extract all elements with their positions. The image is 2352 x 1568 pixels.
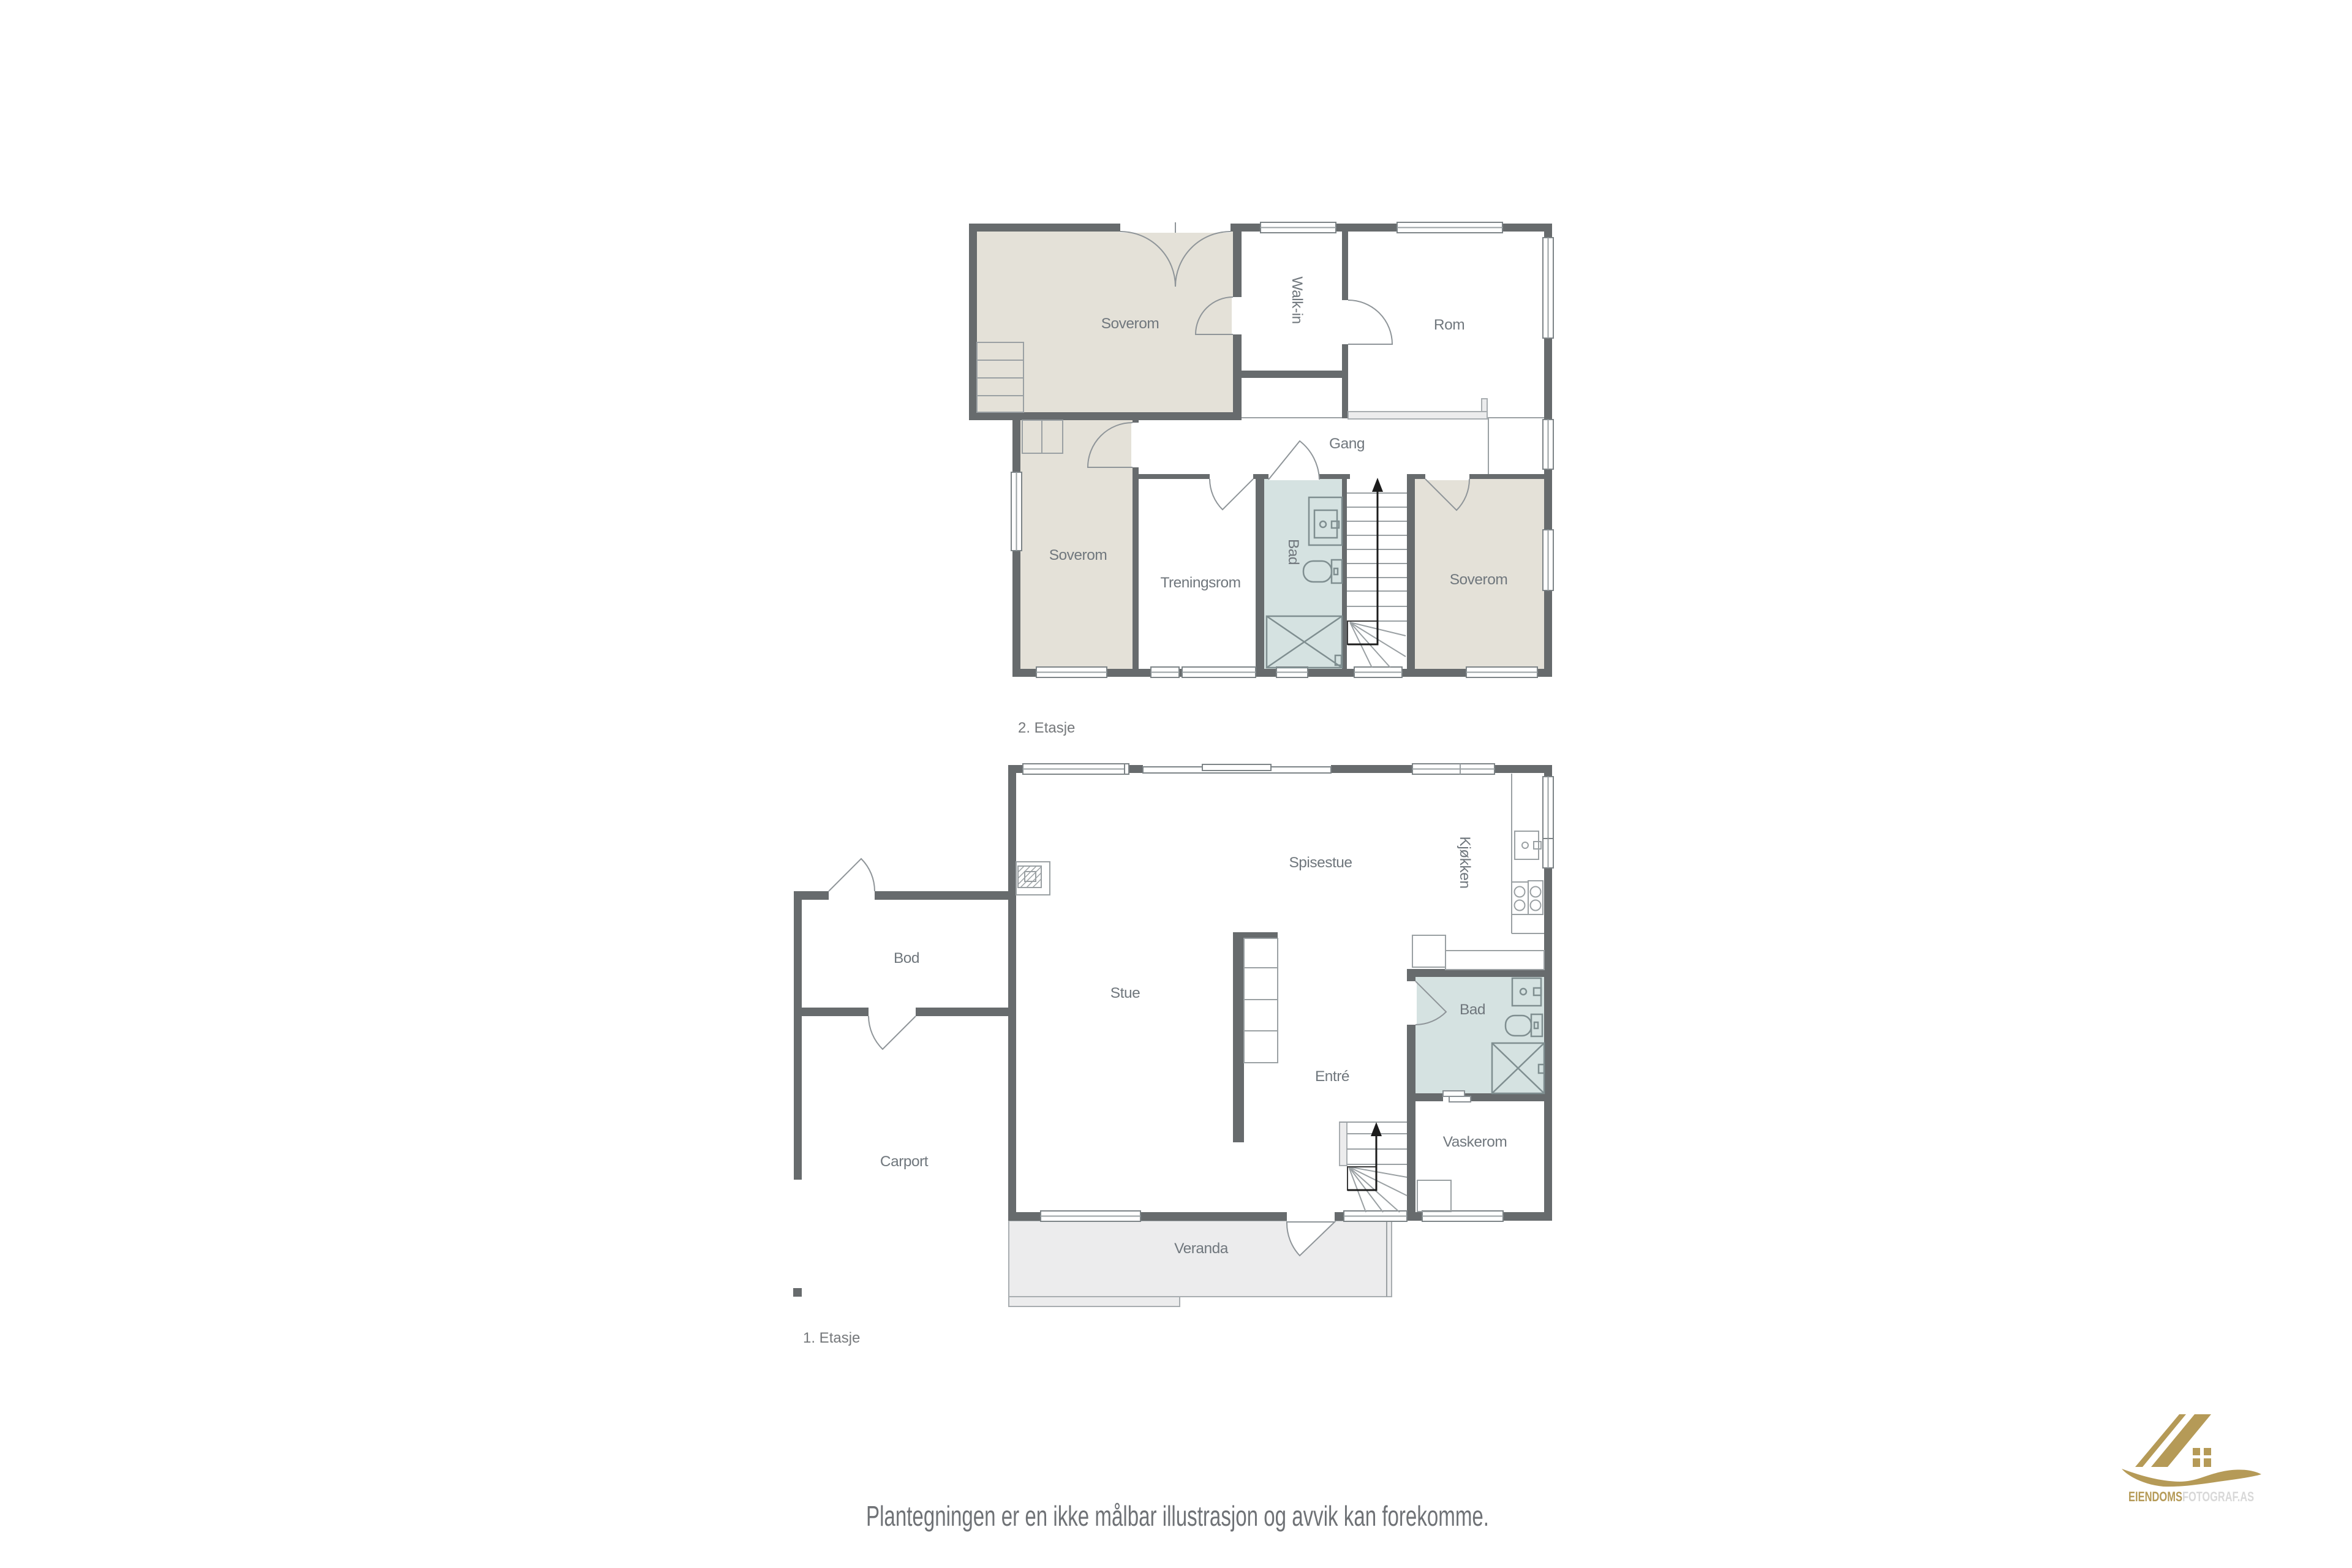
svg-text:Walk-in: Walk-in: [1289, 276, 1305, 323]
svg-text:1. Etasje: 1. Etasje: [803, 1330, 860, 1346]
svg-text:Bod: Bod: [894, 950, 919, 967]
svg-text:Vaskerom: Vaskerom: [1443, 1134, 1507, 1150]
svg-text:Veranda: Veranda: [1174, 1240, 1229, 1257]
svg-text:Bad: Bad: [1460, 1001, 1485, 1018]
svg-text:2. Etasje: 2. Etasje: [1018, 720, 1075, 736]
svg-text:Treningsrom: Treningsrom: [1160, 575, 1240, 591]
svg-text:Gang: Gang: [1329, 435, 1365, 452]
svg-text:Entré: Entré: [1315, 1068, 1349, 1085]
svg-text:Soverom: Soverom: [1049, 547, 1107, 563]
svg-text:Soverom: Soverom: [1101, 315, 1159, 332]
svg-text:Carport: Carport: [880, 1153, 929, 1170]
svg-text:Kjøkken: Kjøkken: [1457, 836, 1473, 888]
svg-text:Soverom: Soverom: [1450, 571, 1508, 588]
svg-text:Plantegningen er en ikke målba: Plantegningen er en ikke målbar illustra…: [866, 1500, 1489, 1532]
svg-text:Rom: Rom: [1434, 317, 1464, 333]
svg-text:EIENDOMS: EIENDOMS: [2128, 1489, 2182, 1504]
svg-text:Stue: Stue: [1110, 985, 1140, 1001]
svg-text:Spisestue: Spisestue: [1289, 854, 1352, 871]
svg-text:FOTOGRAF.AS: FOTOGRAF.AS: [2182, 1489, 2254, 1504]
svg-text:Bad: Bad: [1285, 539, 1302, 565]
